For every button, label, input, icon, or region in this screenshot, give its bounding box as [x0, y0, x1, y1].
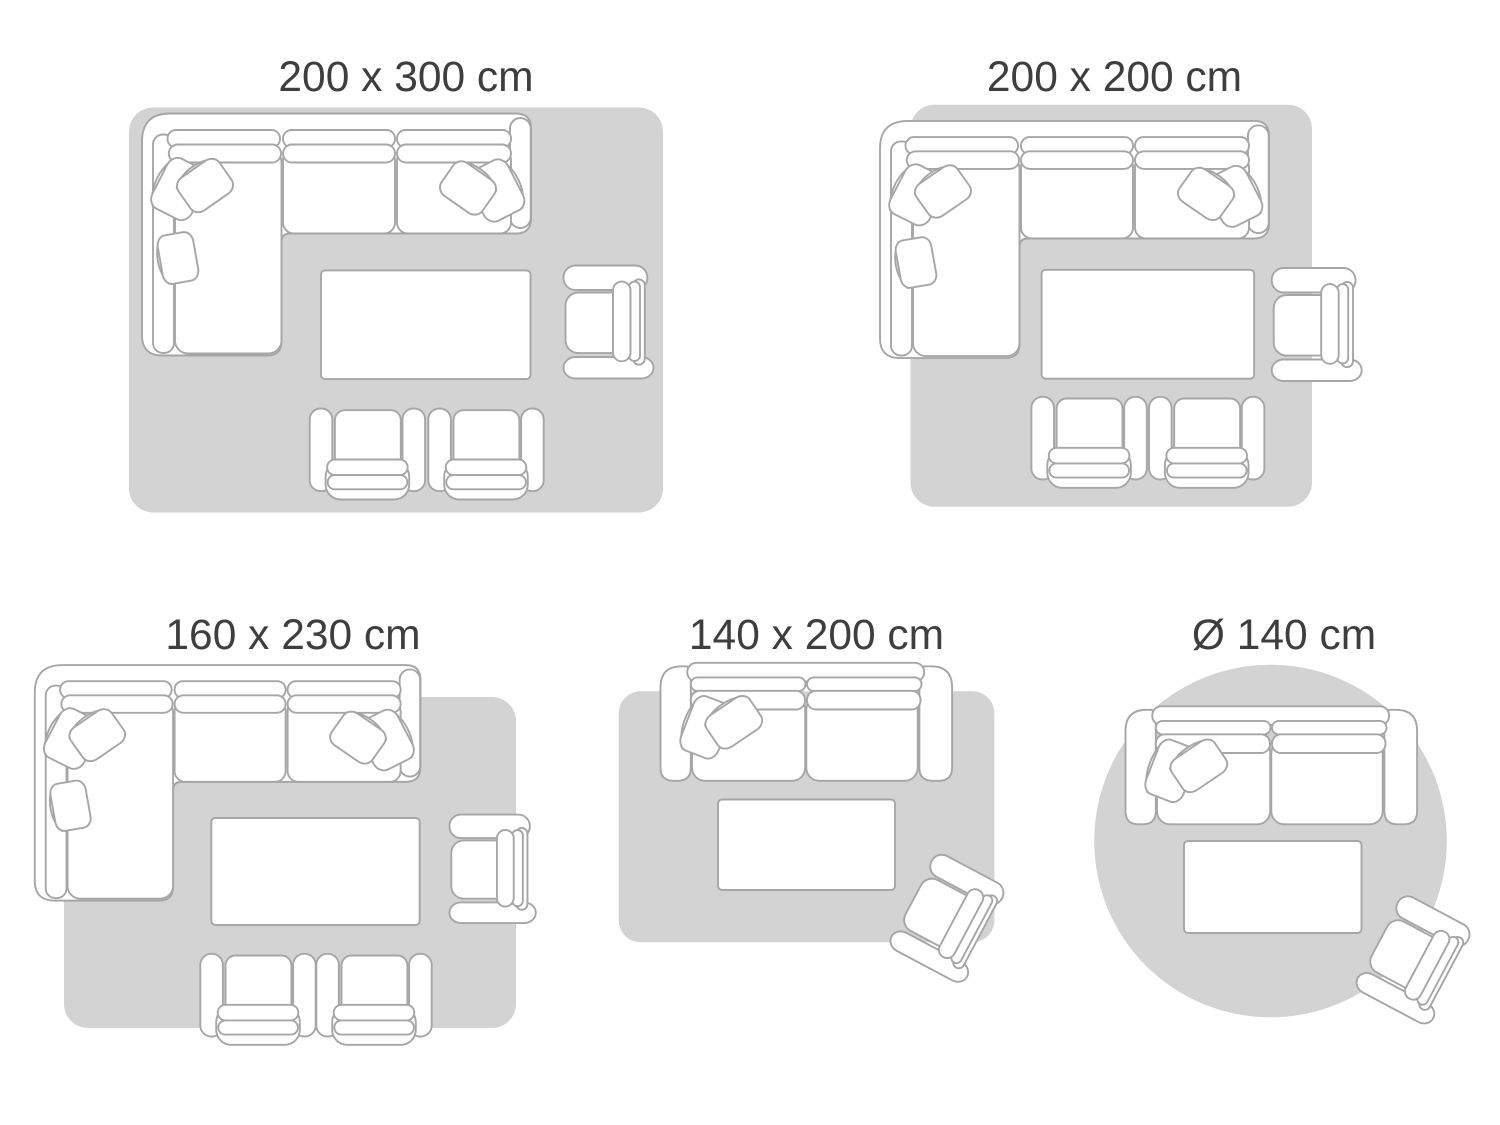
- svg-text:140 x 200 cm: 140 x 200 cm: [689, 612, 944, 659]
- svg-text:200 x 200 cm: 200 x 200 cm: [987, 54, 1242, 101]
- svg-text:Ø 140 cm: Ø 140 cm: [1192, 612, 1376, 659]
- svg-text:160 x 230 cm: 160 x 230 cm: [165, 612, 420, 659]
- svg-text:200 x 300 cm: 200 x 300 cm: [278, 54, 533, 101]
